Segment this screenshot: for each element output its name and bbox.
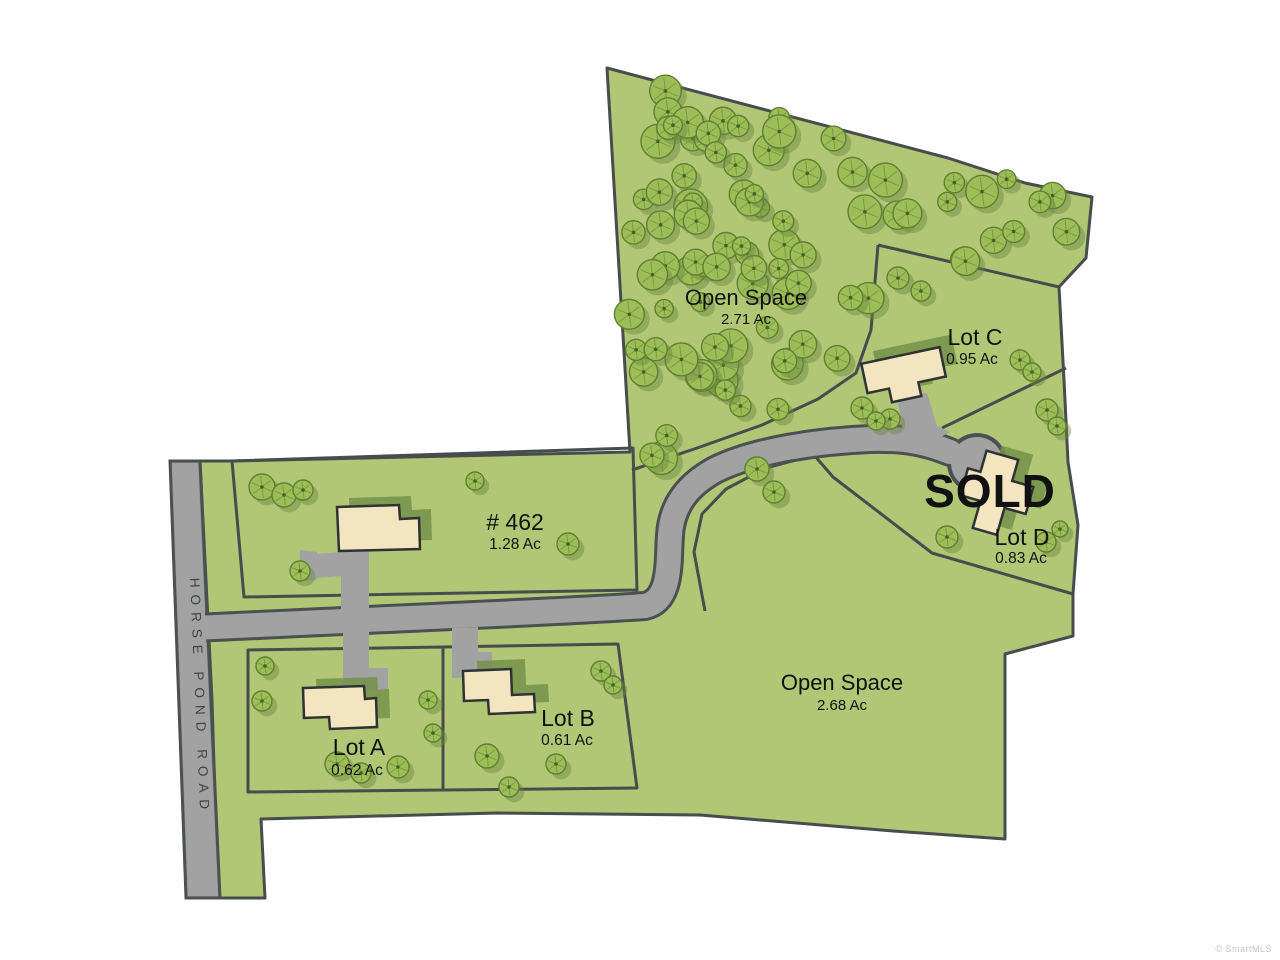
label-lot-b-area: 0.61 Ac [541, 732, 593, 749]
label-lot-d-area: 0.83 Ac [995, 550, 1047, 567]
label-sold: SOLD [924, 465, 1056, 517]
watermark: © SmartMLS [1215, 944, 1272, 954]
label-462: # 462 [486, 509, 544, 535]
label-lot-c-area: 0.95 Ac [946, 351, 998, 368]
label-open-space-south: Open Space [781, 670, 903, 695]
label-462-area: 1.28 Ac [489, 536, 541, 553]
label-open-space-north-area: 2.71 Ac [721, 311, 772, 328]
label-open-space-north: Open Space [685, 285, 807, 310]
label-lot-d: Lot D [995, 524, 1050, 550]
label-lot-c: Lot C [948, 324, 1003, 350]
site-plan-map: Open Space 2.71 Ac Lot C 0.95 Ac SOLD Lo… [0, 0, 1280, 960]
label-lot-a: Lot A [333, 734, 386, 760]
label-lot-b: Lot B [541, 705, 595, 731]
label-lot-a-area: 0.62 Ac [331, 762, 383, 779]
label-open-space-south-area: 2.68 Ac [817, 697, 868, 714]
